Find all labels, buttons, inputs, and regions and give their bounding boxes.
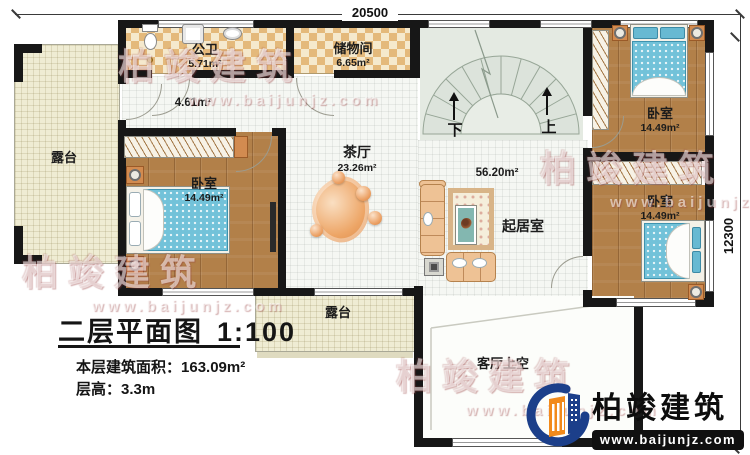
room-label-terrace-bottom: 露台 [325,305,351,321]
side-table-lamp-icon [429,262,439,272]
room-label-hallway: 4.61m² [175,96,211,110]
room-label-bedroom-bottom-right: 卧室 14.49m² [640,194,679,223]
floor-area-row: 本层建筑面积：163.09m² [76,356,245,377]
room-name: 露台 [51,150,77,166]
bed-pillow [129,221,141,246]
nightstand [612,25,628,41]
dimension-right-value: 12300 [721,204,737,268]
floor-plan-canvas: 下 上 公卫 5.71m² 储物间 6.65m² 4.61m² 茶厅 23.26… [0,0,750,455]
room-area: 23.26m² [337,162,376,175]
plan-title: 二层平面图1:100 [58,310,296,349]
wardrobe [124,136,234,158]
room-label-bedroom-top-right: 卧室 14.49m² [640,106,679,135]
toilet-icon [142,24,158,32]
room-name: 卧室 [184,176,223,192]
window [616,298,696,307]
room-area: 6.65m² [333,57,372,70]
room-name: 起居室 [502,218,544,236]
window [705,52,714,136]
bed-pillow [129,192,141,217]
sofa-pillow [423,212,433,226]
decor-rug-dot [310,224,323,237]
wall [334,70,412,78]
brand-website: www.baijunjz.com [592,430,744,450]
door-knob-icon [147,57,153,63]
room-name: 卧室 [640,106,679,122]
wall [118,70,152,78]
room-name: 露台 [325,305,351,321]
room-label-bedroom-left: 卧室 14.49m² [184,176,223,205]
bed-pillow [692,251,701,273]
room-area: 14.49m² [640,210,679,223]
title-underline [58,345,240,348]
floor-height-row: 层高：3.3m [76,378,155,399]
room-name: 公卫 [188,42,221,58]
wall [414,286,423,446]
wall [298,288,314,296]
plan-scale: 1:100 [217,317,296,347]
floor-area-label: 本层建筑面积： [76,359,181,376]
room-label-bathroom: 公卫 5.71m² [188,42,221,71]
stair-down-label: 下 [447,119,462,140]
floor-height-value: 3.3m [121,381,155,398]
room-area: 14.49m² [184,192,223,205]
room-area: 4.61m² [175,96,211,110]
dimension-tick [730,32,740,42]
brand-company-name: 柏竣建筑 [592,383,744,427]
window [162,288,254,296]
window [540,20,592,28]
nightstand [126,256,144,274]
tv-icon [270,202,276,252]
nightstand [688,284,704,300]
room-area: 5.71m² [188,58,221,71]
wall [583,148,592,256]
stair-up-label: 上 [541,116,556,137]
bed-pillow [692,227,701,249]
plan-title-text: 二层平面图 [58,317,203,347]
spiral-staircase [420,22,583,140]
room-label-living-name: 起居室 [502,218,544,236]
wall [583,20,592,116]
brand-logo: 柏竣建筑 www.baijunjz.com [520,380,750,452]
floor-height-label: 层高： [76,381,121,398]
room-name: 储物间 [333,41,372,57]
toilet-icon [144,33,157,50]
room-label-terrace-left: 露台 [51,150,77,166]
terrace-corner-block [14,44,23,82]
room-name: 卧室 [640,194,679,210]
room-label-living-area: 56.20m² [476,166,519,180]
wall [588,152,705,161]
terrace-bottom-bevel [257,352,413,358]
decor-rug-dot [356,186,371,201]
room-area: 56.20m² [476,166,519,180]
stair-arrow-down [453,100,455,120]
sliding-door [314,288,403,296]
room-label-living-void: 客厅上空 [477,356,529,372]
terrace-corner-block [14,226,23,264]
wall [118,128,236,136]
sink-icon [223,27,242,40]
bed-pillow [633,27,658,39]
window [158,20,254,28]
wall [286,24,294,74]
wall [278,128,286,296]
stair-arrow-up [546,95,548,115]
floor-area-value: 163.09m² [181,359,245,376]
room-area: 14.49m² [640,122,679,135]
room-name: 茶厅 [337,144,376,162]
wardrobe [592,161,702,185]
brand-logo-icon [522,382,590,450]
decor-rug-dot [368,211,382,225]
room-name: 客厅上空 [477,356,529,372]
room-label-storage: 储物间 6.65m² [333,41,372,70]
wardrobe-end [234,136,248,158]
dimension-top-value: 20500 [342,5,398,21]
table-flower-icon [461,218,472,229]
sofa [446,252,496,282]
window [705,220,714,292]
bed-pillow [660,27,685,39]
window [428,20,490,28]
shower-tray-icon [182,24,204,44]
room-label-tea-hall: 茶厅 23.26m² [337,144,376,175]
wardrobe [592,30,609,130]
sofa-pillow [452,258,467,268]
sofa-pillow [472,258,487,268]
nightstand [126,166,144,184]
nightstand [689,25,705,41]
